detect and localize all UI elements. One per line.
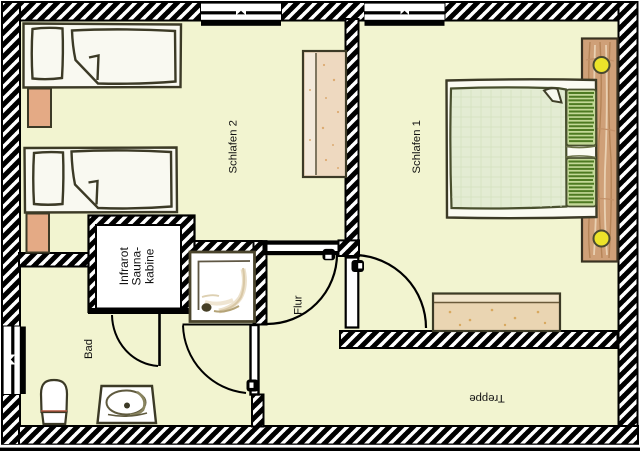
svg-text:Schlafen 1: Schlafen 1 bbox=[411, 120, 423, 173]
svg-text:Bad: Bad bbox=[83, 339, 95, 359]
svg-text:kabine: kabine bbox=[142, 248, 156, 284]
svg-text:Flur: Flur bbox=[292, 295, 304, 315]
svg-text:Treppe: Treppe bbox=[469, 392, 504, 404]
svg-text:Schlafen 2: Schlafen 2 bbox=[227, 120, 239, 173]
